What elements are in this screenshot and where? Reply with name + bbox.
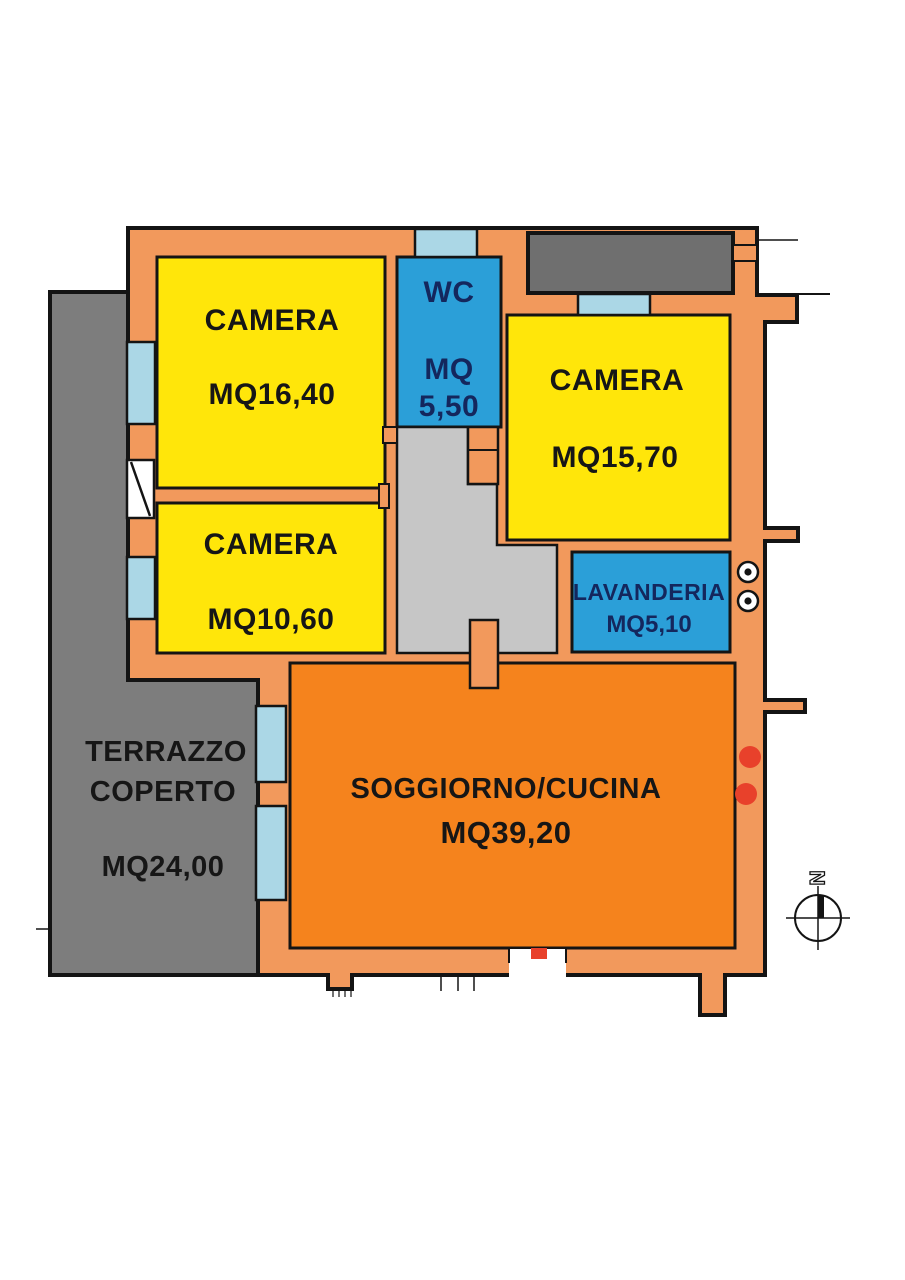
room-camera-ne [507,315,730,540]
compass-north-label: N [805,870,828,885]
window-camera-ne [578,294,650,315]
area-terrazzo: MQ24,00 [102,851,225,883]
window-soggiorno-lower [256,806,286,900]
label-camera-w: CAMERA [204,528,339,561]
pipe-dot [744,597,751,604]
wall-stub [468,427,498,484]
label-lavanderia: LAVANDERIA [573,579,725,605]
window-wc [415,229,477,257]
label-terrazzo-line2: COPERTO [90,776,236,808]
red-dot-marker [735,783,757,805]
label-camera-nw: CAMERA [205,304,340,337]
neighbor-block [528,233,733,293]
window-camera-nw [127,342,155,424]
compass: N [786,870,850,950]
door-jamb [383,427,397,443]
area-wc-line2: 5,50 [419,390,479,423]
area-camera-w: MQ10,60 [208,603,335,636]
window-camera-w [127,557,155,619]
wall-stub [470,620,498,688]
area-camera-ne: MQ15,70 [552,441,679,474]
wall-step [733,245,757,261]
label-soggiorno-cucina: SOGGIORNO/CUCINA [351,773,662,805]
label-terrazzo-line1: TERRAZZO [85,736,247,768]
pipe-dot [744,568,751,575]
area-lavanderia: MQ5,10 [606,611,691,638]
area-wc-line1: MQ [424,353,473,386]
window-soggiorno-upper [256,706,286,782]
red-dot-marker [739,746,761,768]
room-soggiorno-cucina [290,663,735,948]
compass-needle [818,896,824,918]
area-soggiorno-cucina: MQ39,20 [440,815,571,850]
door-jamb [379,484,389,508]
floor-plan-drawing: N CAMERA MQ16,40 WC MQ 5,50 CAMERA MQ15,… [0,0,905,1280]
entrance-marker [531,948,547,959]
label-wc: WC [424,276,475,309]
room-camera-nw [157,257,385,488]
floor-plan-page: N CAMERA MQ16,40 WC MQ 5,50 CAMERA MQ15,… [0,0,905,1280]
label-camera-ne: CAMERA [550,364,685,397]
area-camera-nw: MQ16,40 [209,378,336,411]
